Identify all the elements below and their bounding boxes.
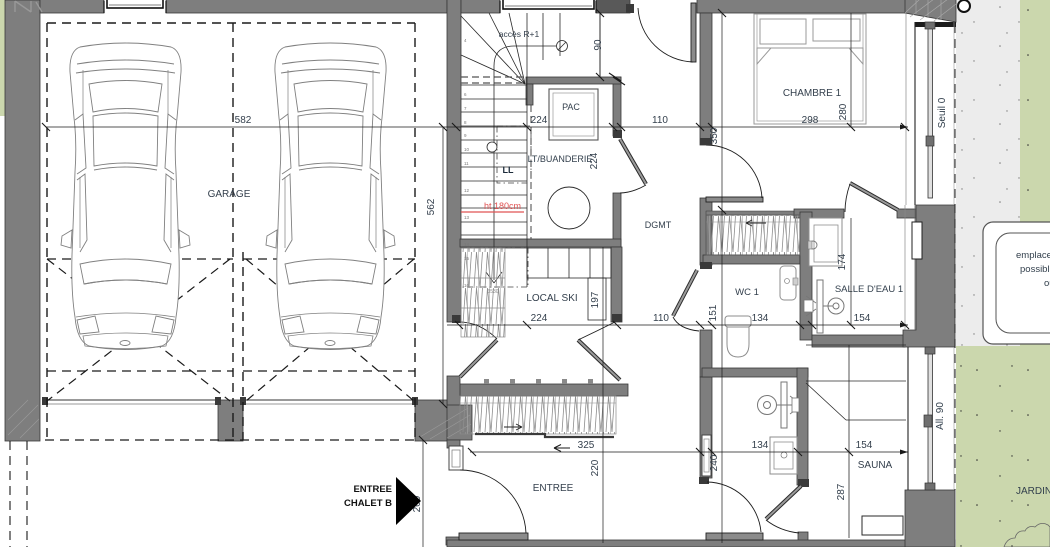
svg-text:SAUNA: SAUNA xyxy=(858,460,893,471)
svg-text:325: 325 xyxy=(578,440,595,451)
svg-text:13: 13 xyxy=(464,215,470,220)
svg-text:10: 10 xyxy=(464,147,470,152)
svg-text:3530: 3530 xyxy=(487,289,498,295)
svg-text:224: 224 xyxy=(589,152,600,169)
svg-text:PAC: PAC xyxy=(562,102,580,112)
svg-text:ht 180cm: ht 180cm xyxy=(484,201,521,211)
svg-text:CHAMBRE 1: CHAMBRE 1 xyxy=(783,88,842,99)
svg-text:CHALET B: CHALET B xyxy=(344,498,392,509)
svg-text:240: 240 xyxy=(709,454,720,471)
svg-text:possible: possible xyxy=(1020,264,1050,275)
svg-text:WC 1: WC 1 xyxy=(735,287,759,298)
svg-text:350: 350 xyxy=(709,127,720,144)
svg-text:accès R+1: accès R+1 xyxy=(499,29,540,39)
svg-text:ENTREE: ENTREE xyxy=(353,484,392,495)
svg-text:280: 280 xyxy=(838,103,849,120)
svg-text:287: 287 xyxy=(836,483,847,500)
svg-text:174: 174 xyxy=(837,253,848,270)
svg-text:134: 134 xyxy=(752,313,769,324)
svg-text:LOCAL SKI: LOCAL SKI xyxy=(526,293,577,304)
svg-text:11: 11 xyxy=(464,161,469,166)
svg-text:All. 90: All. 90 xyxy=(935,402,946,430)
svg-text:582: 582 xyxy=(235,115,252,126)
svg-text:Seuil 0: Seuil 0 xyxy=(937,97,948,128)
svg-text:220: 220 xyxy=(590,459,601,476)
svg-text:14: 14 xyxy=(464,242,470,247)
svg-text:ENTREE: ENTREE xyxy=(533,483,574,494)
svg-text:16: 16 xyxy=(464,283,470,288)
svg-text:12: 12 xyxy=(464,188,470,193)
svg-text:151: 151 xyxy=(708,304,719,321)
svg-text:134: 134 xyxy=(752,440,769,451)
svg-text:110: 110 xyxy=(652,115,668,126)
svg-text:SALLE D'EAU 1: SALLE D'EAU 1 xyxy=(835,284,903,295)
svg-text:90: 90 xyxy=(593,39,604,51)
svg-text:JARDIN: JARDIN xyxy=(1016,486,1050,497)
svg-text:110: 110 xyxy=(653,313,669,324)
svg-text:224: 224 xyxy=(531,313,548,324)
svg-text:562: 562 xyxy=(426,198,437,215)
svg-text:GARAGE: GARAGE xyxy=(208,189,251,200)
svg-text:DGMT: DGMT xyxy=(645,220,672,230)
svg-text:298: 298 xyxy=(802,115,819,126)
svg-text:224: 224 xyxy=(531,115,548,126)
svg-text:emplacement: emplacement xyxy=(1016,250,1050,261)
svg-text:LL: LL xyxy=(503,165,514,175)
svg-text:ou: ou xyxy=(1044,278,1050,289)
svg-text:LT/BUANDERIE: LT/BUANDERIE xyxy=(528,154,593,164)
svg-text:15: 15 xyxy=(464,256,470,261)
svg-text:197: 197 xyxy=(590,291,601,308)
svg-text:154: 154 xyxy=(856,440,873,451)
svg-text:154: 154 xyxy=(854,313,871,324)
